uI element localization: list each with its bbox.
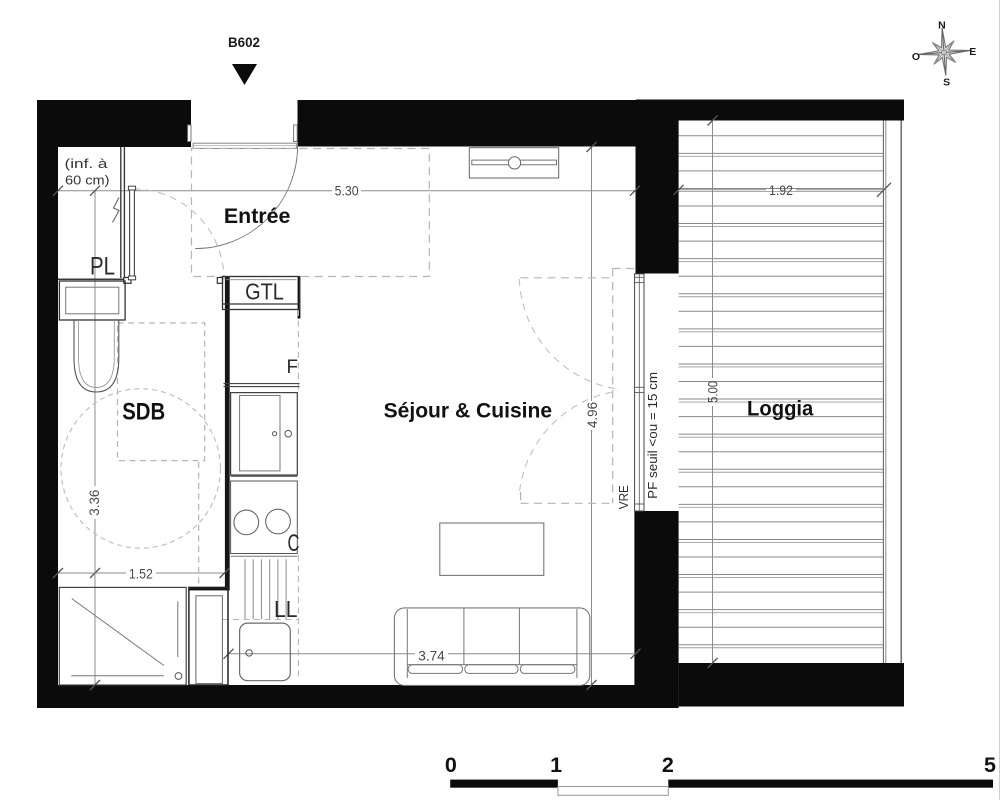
svg-text:3.74: 3.74 <box>418 647 445 663</box>
svg-text:5.00: 5.00 <box>705 381 721 403</box>
svg-text:60 cm): 60 cm) <box>65 172 110 187</box>
svg-text:Séjour & Cuisine: Séjour & Cuisine <box>384 398 553 422</box>
svg-text:(inf. à: (inf. à <box>65 156 109 171</box>
svg-text:O: O <box>912 51 920 63</box>
svg-text:Loggia: Loggia <box>747 398 814 421</box>
svg-text:1.92: 1.92 <box>769 182 793 198</box>
svg-text:PF seuil <ou = 15 cm: PF seuil <ou = 15 cm <box>646 372 660 499</box>
svg-text:GTL: GTL <box>245 279 284 305</box>
svg-text:1: 1 <box>550 753 562 777</box>
svg-text:SDB: SDB <box>122 399 165 426</box>
svg-text:LL: LL <box>274 596 298 622</box>
svg-text:0: 0 <box>445 753 457 777</box>
svg-text:F: F <box>287 357 299 378</box>
svg-text:PL: PL <box>90 253 115 281</box>
svg-text:5: 5 <box>984 753 996 777</box>
svg-text:1.52: 1.52 <box>129 565 153 581</box>
svg-text:VRE: VRE <box>617 485 631 509</box>
svg-text:2: 2 <box>662 753 674 777</box>
svg-text:E: E <box>969 46 976 58</box>
svg-text:5.30: 5.30 <box>335 183 359 199</box>
svg-text:Entrée: Entrée <box>224 204 291 228</box>
svg-text:B602: B602 <box>228 34 260 50</box>
svg-text:3.36: 3.36 <box>86 489 102 515</box>
svg-text:C: C <box>288 530 300 557</box>
svg-text:S: S <box>943 77 950 89</box>
svg-text:4.96: 4.96 <box>584 402 600 428</box>
svg-text:N: N <box>938 20 946 32</box>
